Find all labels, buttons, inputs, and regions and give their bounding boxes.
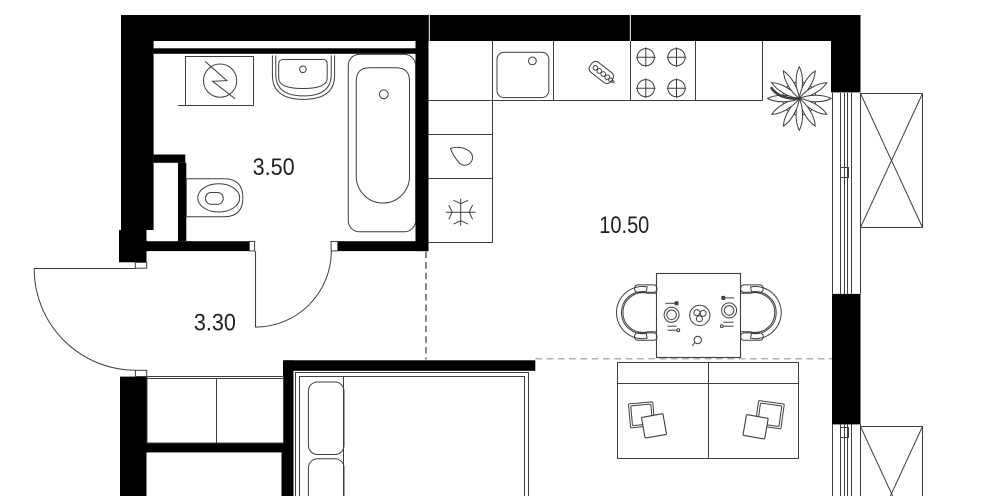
svg-text:3.50: 3.50 bbox=[253, 154, 295, 181]
svg-text:10.50: 10.50 bbox=[599, 212, 649, 239]
svg-text:3.30: 3.30 bbox=[194, 310, 236, 337]
